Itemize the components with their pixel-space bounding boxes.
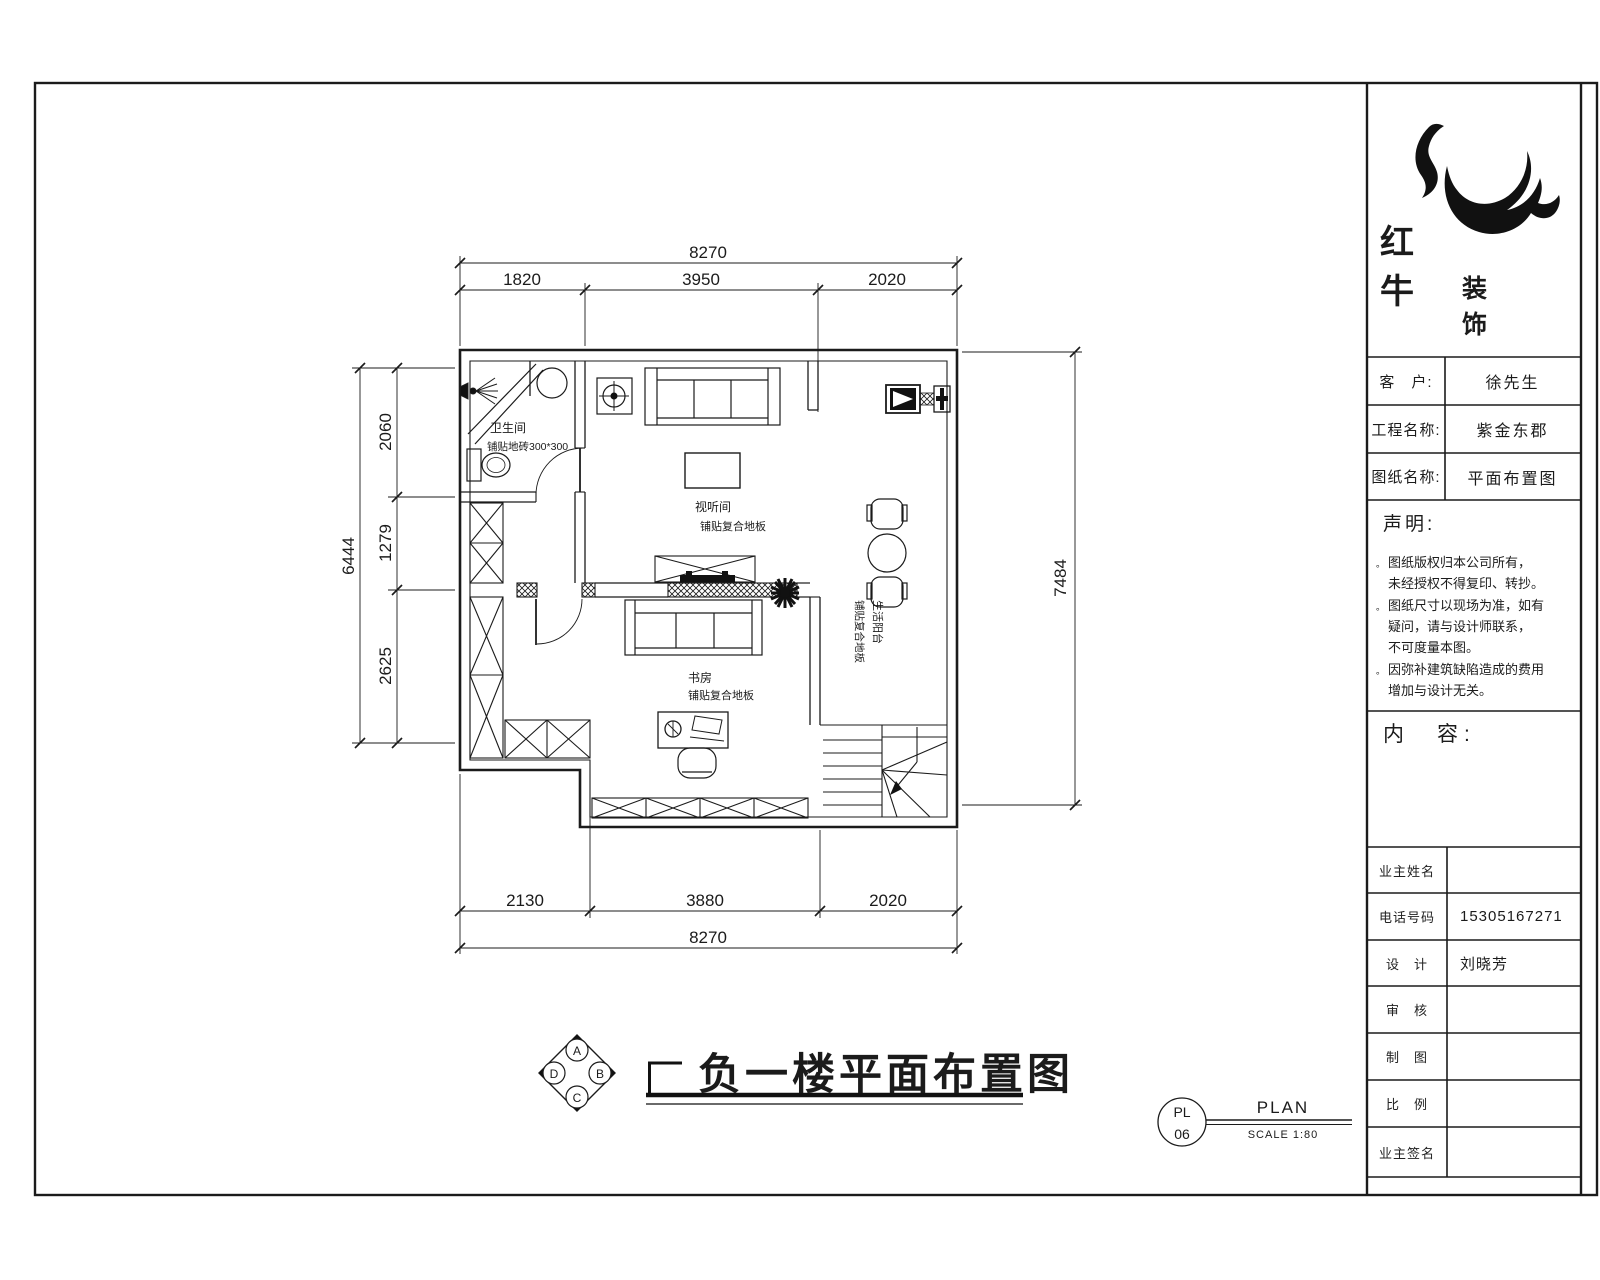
client-value: 徐先生 bbox=[1445, 357, 1580, 405]
dim-left-seg3: 2625 bbox=[376, 647, 395, 685]
dim-left-total: 6444 bbox=[339, 537, 358, 575]
dim-top-seg3: 2020 bbox=[868, 270, 906, 289]
sofa-study bbox=[625, 600, 762, 655]
drawing-sheet: 8270 1820 3950 2020 2130 3880 2020 8270 … bbox=[0, 0, 1600, 1280]
compass-a: A bbox=[573, 1044, 581, 1058]
project-name-value: 紫金东郡 bbox=[1445, 405, 1580, 453]
statement-line: 因弥补建筑缺陷造成的费用 bbox=[1388, 659, 1578, 680]
dim-bottom-seg2: 3880 bbox=[686, 891, 724, 910]
room-note-study: 铺贴复合地板 bbox=[688, 688, 754, 702]
drafter-label: 制 图 bbox=[1367, 1033, 1447, 1080]
room-note-balcony: 铺贴复合地板 bbox=[853, 600, 866, 663]
room-label-balcony: 生活阳台 bbox=[871, 600, 885, 644]
content-heading: 内 容: bbox=[1383, 718, 1533, 748]
drawing-title: 负一楼平面布置图 bbox=[698, 1040, 1074, 1102]
statement-item: 。 图纸版权归本公司所有， 未经授权不得复印、转抄。 bbox=[1376, 552, 1578, 594]
compass-b: B bbox=[596, 1067, 604, 1081]
bullet-mark: 。 bbox=[1376, 661, 1385, 682]
treadmill-icon bbox=[886, 385, 950, 413]
scale-label: 比 例 bbox=[1367, 1080, 1447, 1127]
cabinet-left-lower bbox=[470, 597, 503, 758]
cabinet-left-upper bbox=[470, 503, 503, 583]
reviewer-label: 审 核 bbox=[1367, 986, 1447, 1033]
sheet-name-label: 图纸名称: bbox=[1367, 453, 1445, 500]
sheet-ref-scale: SCALE 1:80 bbox=[1248, 1129, 1319, 1141]
sofa-top bbox=[645, 368, 780, 425]
statement-line: 不可度量本图。 bbox=[1388, 637, 1578, 658]
shower-head-icon bbox=[460, 378, 498, 404]
sheet-frame bbox=[35, 83, 1597, 1195]
statement-item: 。 因弥补建筑缺陷造成的费用 增加与设计无关。 bbox=[1376, 659, 1578, 701]
dim-top-seg2: 3950 bbox=[682, 270, 720, 289]
dim-top-seg1: 1820 bbox=[503, 270, 541, 289]
statement-line: 图纸尺寸以现场为准，如有 bbox=[1388, 595, 1578, 616]
sheet-ref-code-top: PL bbox=[1173, 1104, 1190, 1120]
compass-c: C bbox=[573, 1091, 582, 1105]
desk bbox=[658, 712, 728, 748]
ceiling-lamp-icon bbox=[597, 378, 632, 414]
dim-bottom-seg3: 2020 bbox=[869, 891, 907, 910]
dim-top-total: 8270 bbox=[689, 243, 727, 262]
project-name-label: 工程名称: bbox=[1367, 405, 1445, 453]
statement-heading: 声明: bbox=[1383, 508, 1503, 536]
client-label: 客 户: bbox=[1367, 357, 1445, 405]
toilet-icon bbox=[467, 449, 510, 481]
dim-left-seg1: 2060 bbox=[376, 413, 395, 451]
dim-right-total: 7484 bbox=[1051, 559, 1070, 597]
statement-line: 增加与设计无关。 bbox=[1388, 680, 1578, 701]
desk-chair bbox=[678, 748, 716, 778]
statement-line: 疑问，请与设计师联系， bbox=[1388, 616, 1578, 637]
tv-feature-wall bbox=[517, 583, 797, 597]
designer-value: 刘晓芳 bbox=[1460, 940, 1578, 986]
left-dimensions bbox=[352, 363, 455, 748]
sheet-ref-label: PLAN bbox=[1257, 1098, 1309, 1117]
drafter-value bbox=[1460, 1033, 1578, 1080]
owner-name-label: 业主姓名 bbox=[1367, 847, 1447, 893]
stairs bbox=[820, 725, 947, 817]
designer-label: 设 计 bbox=[1367, 940, 1447, 986]
tv-cabinet bbox=[655, 556, 755, 582]
room-note-bathroom: 铺贴地砖300*300 bbox=[487, 440, 568, 453]
room-label-study: 书房 bbox=[688, 670, 712, 685]
company-subname: 装 饰 bbox=[1462, 288, 1577, 322]
plant-icon bbox=[771, 578, 799, 608]
sheet-ref-code-bottom: 06 bbox=[1174, 1126, 1190, 1142]
owner-sign-label: 业主签名 bbox=[1367, 1127, 1447, 1177]
phone-label: 电话号码 bbox=[1367, 893, 1447, 940]
scale-value bbox=[1460, 1080, 1578, 1127]
compass-d: D bbox=[550, 1067, 559, 1081]
dim-left-seg2: 1279 bbox=[376, 524, 395, 562]
statement-list: 。 图纸版权归本公司所有， 未经授权不得复印、转抄。 。 图纸尺寸以现场为准，如… bbox=[1376, 552, 1578, 702]
balcony-partition bbox=[797, 583, 820, 725]
statement-line: 未经授权不得复印、转抄。 bbox=[1388, 573, 1578, 594]
study-door bbox=[536, 599, 582, 645]
bullet-mark: 。 bbox=[1376, 597, 1385, 618]
bathroom-door bbox=[536, 448, 583, 495]
room-label-bathroom: 卫生间 bbox=[490, 421, 526, 435]
dim-bottom-seg1: 2130 bbox=[506, 891, 544, 910]
room-label-av-room: 视听间 bbox=[695, 499, 731, 514]
bathroom-walls bbox=[460, 361, 585, 583]
statement-item: 。 图纸尺寸以现场为准，如有 疑问，请与设计师联系， 不可度量本图。 bbox=[1376, 595, 1578, 658]
sheet-name-value: 平面布置图 bbox=[1445, 453, 1580, 500]
owner-name-value bbox=[1460, 847, 1578, 893]
dim-bottom-total: 8270 bbox=[689, 928, 727, 947]
bullet-mark: 。 bbox=[1376, 554, 1385, 575]
wall-stub-top bbox=[808, 361, 818, 410]
coffee-table bbox=[685, 453, 740, 488]
owner-sign-value bbox=[1460, 1127, 1578, 1177]
reviewer-value bbox=[1460, 986, 1578, 1033]
cabinet-bottom-left bbox=[505, 720, 590, 758]
tea-set bbox=[867, 499, 907, 607]
phone-value: 15305167271 bbox=[1460, 893, 1578, 940]
room-note-av-room: 铺贴复合地板 bbox=[700, 519, 766, 533]
washbasin-icon bbox=[537, 368, 567, 398]
statement-line: 图纸版权归本公司所有， bbox=[1388, 552, 1578, 573]
bookshelf-bottom bbox=[592, 798, 808, 818]
